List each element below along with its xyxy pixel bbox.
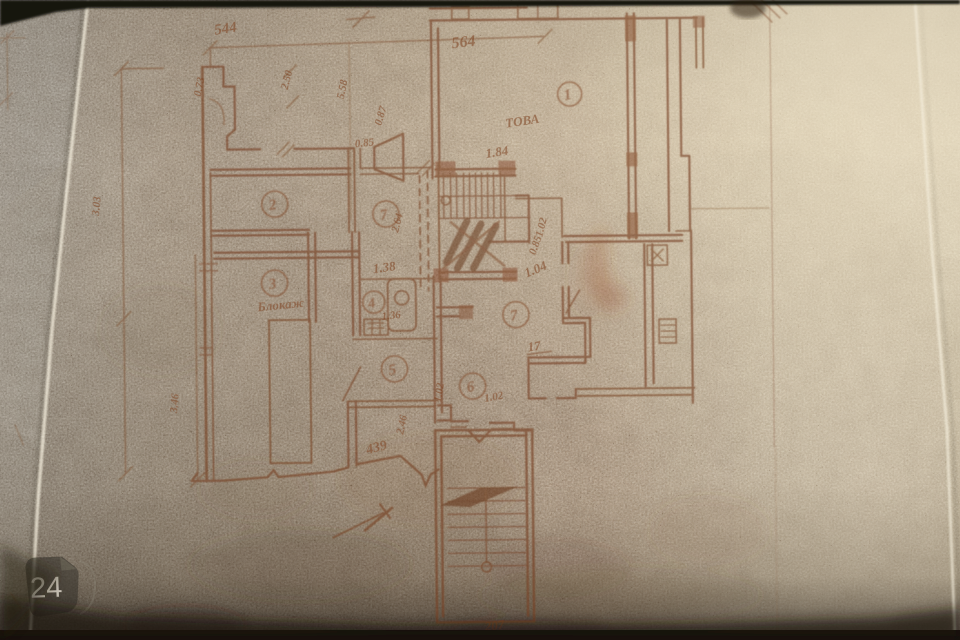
svg-text:1.38: 1.38 — [372, 258, 397, 276]
svg-text:3.46: 3.46 — [168, 393, 182, 415]
svg-text:0.85: 0.85 — [354, 136, 375, 150]
svg-text:544: 544 — [213, 19, 238, 38]
svg-text:1.36: 1.36 — [381, 309, 402, 323]
svg-text:3.03: 3.03 — [90, 195, 104, 217]
svg-text:564: 564 — [451, 33, 477, 53]
